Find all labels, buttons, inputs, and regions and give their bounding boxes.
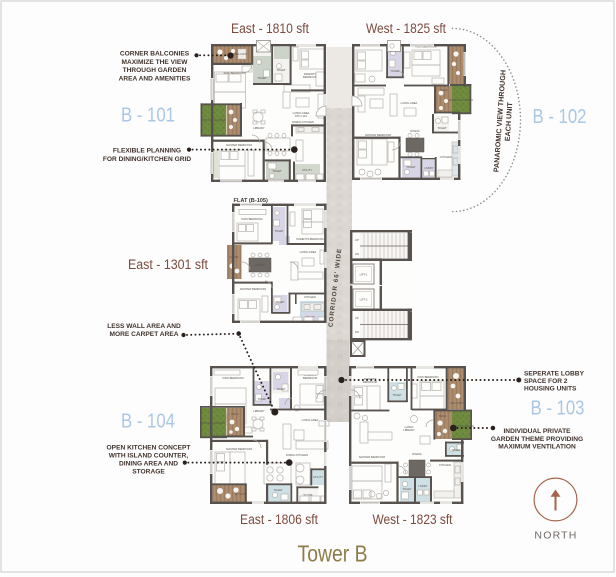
svg-text:UP: UP <box>355 238 359 242</box>
svg-text:NORTH: NORTH <box>534 530 577 542</box>
svg-text:MASTER BEDROOM: MASTER BEDROOM <box>226 143 253 147</box>
svg-text:SEPERATE LOBBY: SEPERATE LOBBY <box>524 370 585 377</box>
svg-text:TOILET: TOILET <box>272 169 282 173</box>
svg-text:PRIVATE GARDEN: PRIVATE GARDEN <box>449 98 472 102</box>
svg-text:PRIVATE GARDEN: PRIVATE GARDEN <box>202 118 225 122</box>
svg-text:TOILET: TOILET <box>402 487 412 491</box>
svg-text:UP: UP <box>355 316 359 320</box>
svg-text:East - 1301 sft: East - 1301 sft <box>128 257 208 272</box>
svg-text:MASTER BEDROOM: MASTER BEDROOM <box>226 447 253 451</box>
svg-text:HOUSING UNITS: HOUSING UNITS <box>524 386 577 393</box>
svg-text:DECK: DECK <box>439 414 447 418</box>
svg-text:FLEXIBLE PLANNING: FLEXIBLE PLANNING <box>113 148 181 155</box>
svg-text:B - 101: B - 101 <box>121 105 175 127</box>
svg-text:TOILET: TOILET <box>276 387 286 391</box>
svg-text:LIFT-1: LIFT-1 <box>360 273 368 277</box>
svg-text:LNDRY: LNDRY <box>418 484 427 488</box>
svg-text:SIDE BEDROOM: SIDE BEDROOM <box>224 71 246 75</box>
svg-text:UTILITY: UTILITY <box>313 475 323 479</box>
svg-text:TOILET: TOILET <box>392 393 402 397</box>
svg-text:THROUGH GARDEN: THROUGH GARDEN <box>123 67 187 74</box>
svg-text:KIDS BEDROOM: KIDS BEDROOM <box>242 217 264 221</box>
svg-text:West - 1825 sft: West - 1825 sft <box>366 21 446 36</box>
svg-text:TOILET: TOILET <box>274 229 284 233</box>
svg-text:DN: DN <box>355 330 359 334</box>
svg-text:DINING KITCHEN: DINING KITCHEN <box>286 453 308 457</box>
svg-text:FOR DINING/KITCHEN GRID: FOR DINING/KITCHEN GRID <box>103 156 192 163</box>
svg-text:BALCONY: BALCONY <box>235 52 248 56</box>
svg-text:MASTER BEDROOM: MASTER BEDROOM <box>359 455 386 459</box>
svg-text:LIBRARY: LIBRARY <box>253 126 265 130</box>
svg-text:UTILITY: UTILITY <box>302 168 312 172</box>
svg-text:SPACE FOR 2: SPACE FOR 2 <box>524 378 568 385</box>
svg-text:KITCHEN: KITCHEN <box>439 463 451 467</box>
svg-text:SIT OUT: SIT OUT <box>235 492 246 496</box>
svg-text:165 X 116: 165 X 116 <box>295 114 308 118</box>
svg-text:TOILET: TOILET <box>437 126 447 130</box>
svg-text:TOILET: TOILET <box>275 300 285 304</box>
svg-text:MORE CARPET AREA: MORE CARPET AREA <box>110 331 179 338</box>
svg-text:GARDEN THEME PROVIDING: GARDEN THEME PROVIDING <box>491 436 583 443</box>
svg-text:MASTER BEDROOM: MASTER BEDROOM <box>365 133 392 137</box>
svg-text:AREA AND AMENITIES: AREA AND AMENITIES <box>119 75 191 82</box>
svg-text:LIFT-2: LIFT-2 <box>360 298 368 302</box>
svg-text:LIVING AREA: LIVING AREA <box>302 418 319 422</box>
svg-text:TOILET: TOILET <box>406 165 416 169</box>
svg-text:DN: DN <box>355 252 359 256</box>
svg-text:East - 1810 sft: East - 1810 sft <box>231 21 309 36</box>
svg-text:DECK: DECK <box>440 88 448 92</box>
svg-text:BEDROOM: BEDROOM <box>303 75 318 79</box>
svg-text:LIBRARY: LIBRARY <box>253 409 265 413</box>
svg-text:LIVING AREA: LIVING AREA <box>401 101 418 105</box>
svg-text:MAXIMUM VENTILATION: MAXIMUM VENTILATION <box>498 444 576 451</box>
svg-text:East - 1806 sft: East - 1806 sft <box>240 512 318 527</box>
svg-text:KITCHEN: KITCHEN <box>440 155 452 159</box>
svg-text:TOILET: TOILET <box>257 397 267 401</box>
svg-text:FLAT (B-105): FLAT (B-105) <box>234 198 269 204</box>
svg-text:TOILET: TOILET <box>273 488 283 492</box>
svg-text:DINING AREA AND: DINING AREA AND <box>119 461 178 468</box>
svg-text:TOILET: TOILET <box>257 76 267 80</box>
svg-text:DINING: DINING <box>255 263 264 267</box>
svg-text:KIDS BEDROOM: KIDS BEDROOM <box>223 376 245 380</box>
svg-text:DINING: DINING <box>410 129 419 133</box>
svg-text:WITH ISLAND COUNTER,: WITH ISLAND COUNTER, <box>109 453 189 460</box>
svg-text:DECK: DECK <box>231 412 239 416</box>
svg-text:LIBRARY: LIBRARY <box>403 428 415 432</box>
svg-text:KIDS BEDROOM: KIDS BEDROOM <box>418 375 440 379</box>
svg-text:TOILET: TOILET <box>276 68 286 72</box>
svg-text:LESS WALL AREA AND: LESS WALL AREA AND <box>107 323 181 330</box>
svg-text:KITCHEN: KITCHEN <box>304 295 316 299</box>
svg-text:MASTER BEDROOM: MASTER BEDROOM <box>240 287 267 291</box>
svg-text:INDIVIDUAL PRIVATE: INDIVIDUAL PRIVATE <box>503 428 571 435</box>
svg-text:LNDRY: LNDRY <box>424 166 433 170</box>
svg-text:OPEN KITCHEN CONCEPT: OPEN KITCHEN CONCEPT <box>107 444 191 451</box>
svg-text:DINING: DINING <box>412 452 421 456</box>
svg-text:Tower B: Tower B <box>298 541 368 567</box>
svg-text:PRIVATE GARDEN: PRIVATE GARDEN <box>201 421 224 425</box>
svg-text:LIVING AREA: LIVING AREA <box>300 250 317 254</box>
svg-text:MAXIMIZE THE VIEW: MAXIMIZE THE VIEW <box>122 59 189 66</box>
svg-text:STORAGE: STORAGE <box>132 469 165 476</box>
svg-text:B - 104: B - 104 <box>121 411 175 433</box>
svg-text:PARENTS BEDROOM: PARENTS BEDROOM <box>296 237 324 241</box>
svg-text:B - 103: B - 103 <box>531 398 585 420</box>
svg-text:CORNER BALCONIES: CORNER BALCONIES <box>120 51 190 58</box>
svg-text:West - 1823 sft: West - 1823 sft <box>373 512 453 527</box>
svg-text:B - 102: B - 102 <box>533 106 587 128</box>
svg-text:TOILET: TOILET <box>451 448 461 452</box>
svg-text:BEDROOM: BEDROOM <box>303 376 318 380</box>
svg-text:BALCONY: BALCONY <box>451 401 464 405</box>
svg-text:DINING KITCHEN: DINING KITCHEN <box>292 120 314 124</box>
